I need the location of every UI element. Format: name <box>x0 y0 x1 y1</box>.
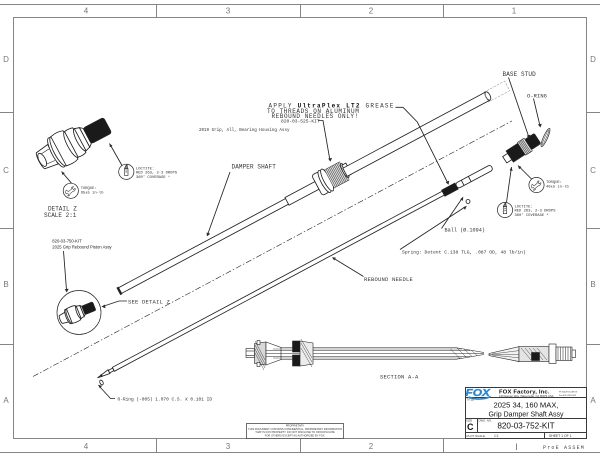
svg-text:1: 1 <box>512 7 517 16</box>
svg-text:2: 2 <box>369 442 374 451</box>
svg-text:D: D <box>590 55 596 64</box>
svg-text:820-03-525-KIT: 820-03-525-KIT <box>281 119 320 125</box>
svg-text:PLOT SCALE: PLOT SCALE <box>467 434 485 438</box>
svg-text:C: C <box>467 422 474 432</box>
svg-text:B: B <box>3 280 8 289</box>
svg-text:TITLE: TITLE <box>467 398 475 402</box>
svg-text:1:1: 1:1 <box>494 434 499 438</box>
svg-text:TORQUE:: TORQUE: <box>81 187 97 191</box>
svg-text:SCALE 2:1: SCALE 2:1 <box>44 212 77 219</box>
svg-text:SEE DETAIL Z: SEE DETAIL Z <box>128 299 171 306</box>
svg-text:Ball (Ø.1094): Ball (Ø.1094) <box>445 227 485 234</box>
svg-text:A: A <box>590 396 596 405</box>
svg-text:2: 2 <box>369 7 374 16</box>
svg-text:Ph 800-FOX-SHOX: Ph 800-FOX-SHOX <box>559 391 578 393</box>
svg-text:A: A <box>3 396 9 405</box>
svg-text:2025 Grip Rebound Piston Assy: 2025 Grip Rebound Piston Assy <box>52 245 112 250</box>
svg-text:3: 3 <box>226 442 231 451</box>
svg-text:O-Ring (-005) 1.070 C.S. X 0.1: O-Ring (-005) 1.070 C.S. X 0.101 ID <box>118 397 213 403</box>
svg-text:820-03-750-KIT: 820-03-750-KIT <box>52 239 82 244</box>
svg-text:ProE ASSEM: ProE ASSEM <box>543 445 585 451</box>
svg-text:DAMPER SHAFT: DAMPER SHAFT <box>232 164 277 171</box>
svg-text:B: B <box>590 280 595 289</box>
svg-text:FOR OTHERS EXCEPT AS AUTHORIZE: FOR OTHERS EXCEPT AS AUTHORIZED BY FOX. <box>265 433 326 437</box>
svg-text:Spring: Detent C.138 TLG, .087: Spring: Detent C.138 TLG, .087 OD, 48 lb… <box>402 250 526 256</box>
svg-text:SECTION A-A: SECTION A-A <box>380 374 419 381</box>
svg-text:360° COVERAGE *: 360° COVERAGE * <box>515 213 549 218</box>
svg-text:REBOUND NEEDLE: REBOUND NEEDLE <box>364 276 414 283</box>
svg-text:2025 34, 160 MAX,: 2025 34, 160 MAX, <box>493 401 558 410</box>
svg-text:4: 4 <box>84 442 89 451</box>
svg-text:C: C <box>590 166 596 175</box>
svg-text:SHEET 1 OF 1: SHEET 1 OF 1 <box>549 434 572 438</box>
svg-text:TORQUE:: TORQUE: <box>546 181 562 185</box>
svg-text:3: 3 <box>226 7 231 16</box>
svg-text:Fax 831-768-9342: Fax 831-768-9342 <box>559 395 577 397</box>
svg-text:130 Hanger Way, Watsonville, C: 130 Hanger Way, Watsonville, CA 95076 US… <box>499 394 554 398</box>
svg-text:65±5 in-lb: 65±5 in-lb <box>81 191 105 196</box>
svg-text:DWG. NO.: DWG. NO. <box>479 419 493 423</box>
svg-text:2019 Grip, All, Bearing Housin: 2019 Grip, All, Bearing Housing Assy <box>199 128 290 133</box>
svg-text:Grip Damper Shaft Assy: Grip Damper Shaft Assy <box>488 412 564 419</box>
svg-text:O-RING: O-RING <box>527 94 547 100</box>
svg-text:820-03-752-KIT: 820-03-752-KIT <box>497 421 554 430</box>
svg-text:40±5 in-lb: 40±5 in-lb <box>546 185 570 190</box>
svg-text:BASE STUD: BASE STUD <box>503 71 537 78</box>
svg-text:C: C <box>3 166 9 175</box>
svg-text:4: 4 <box>84 7 89 16</box>
svg-text:D: D <box>3 55 9 64</box>
svg-text:360° COVERAGE *: 360° COVERAGE * <box>136 175 170 180</box>
